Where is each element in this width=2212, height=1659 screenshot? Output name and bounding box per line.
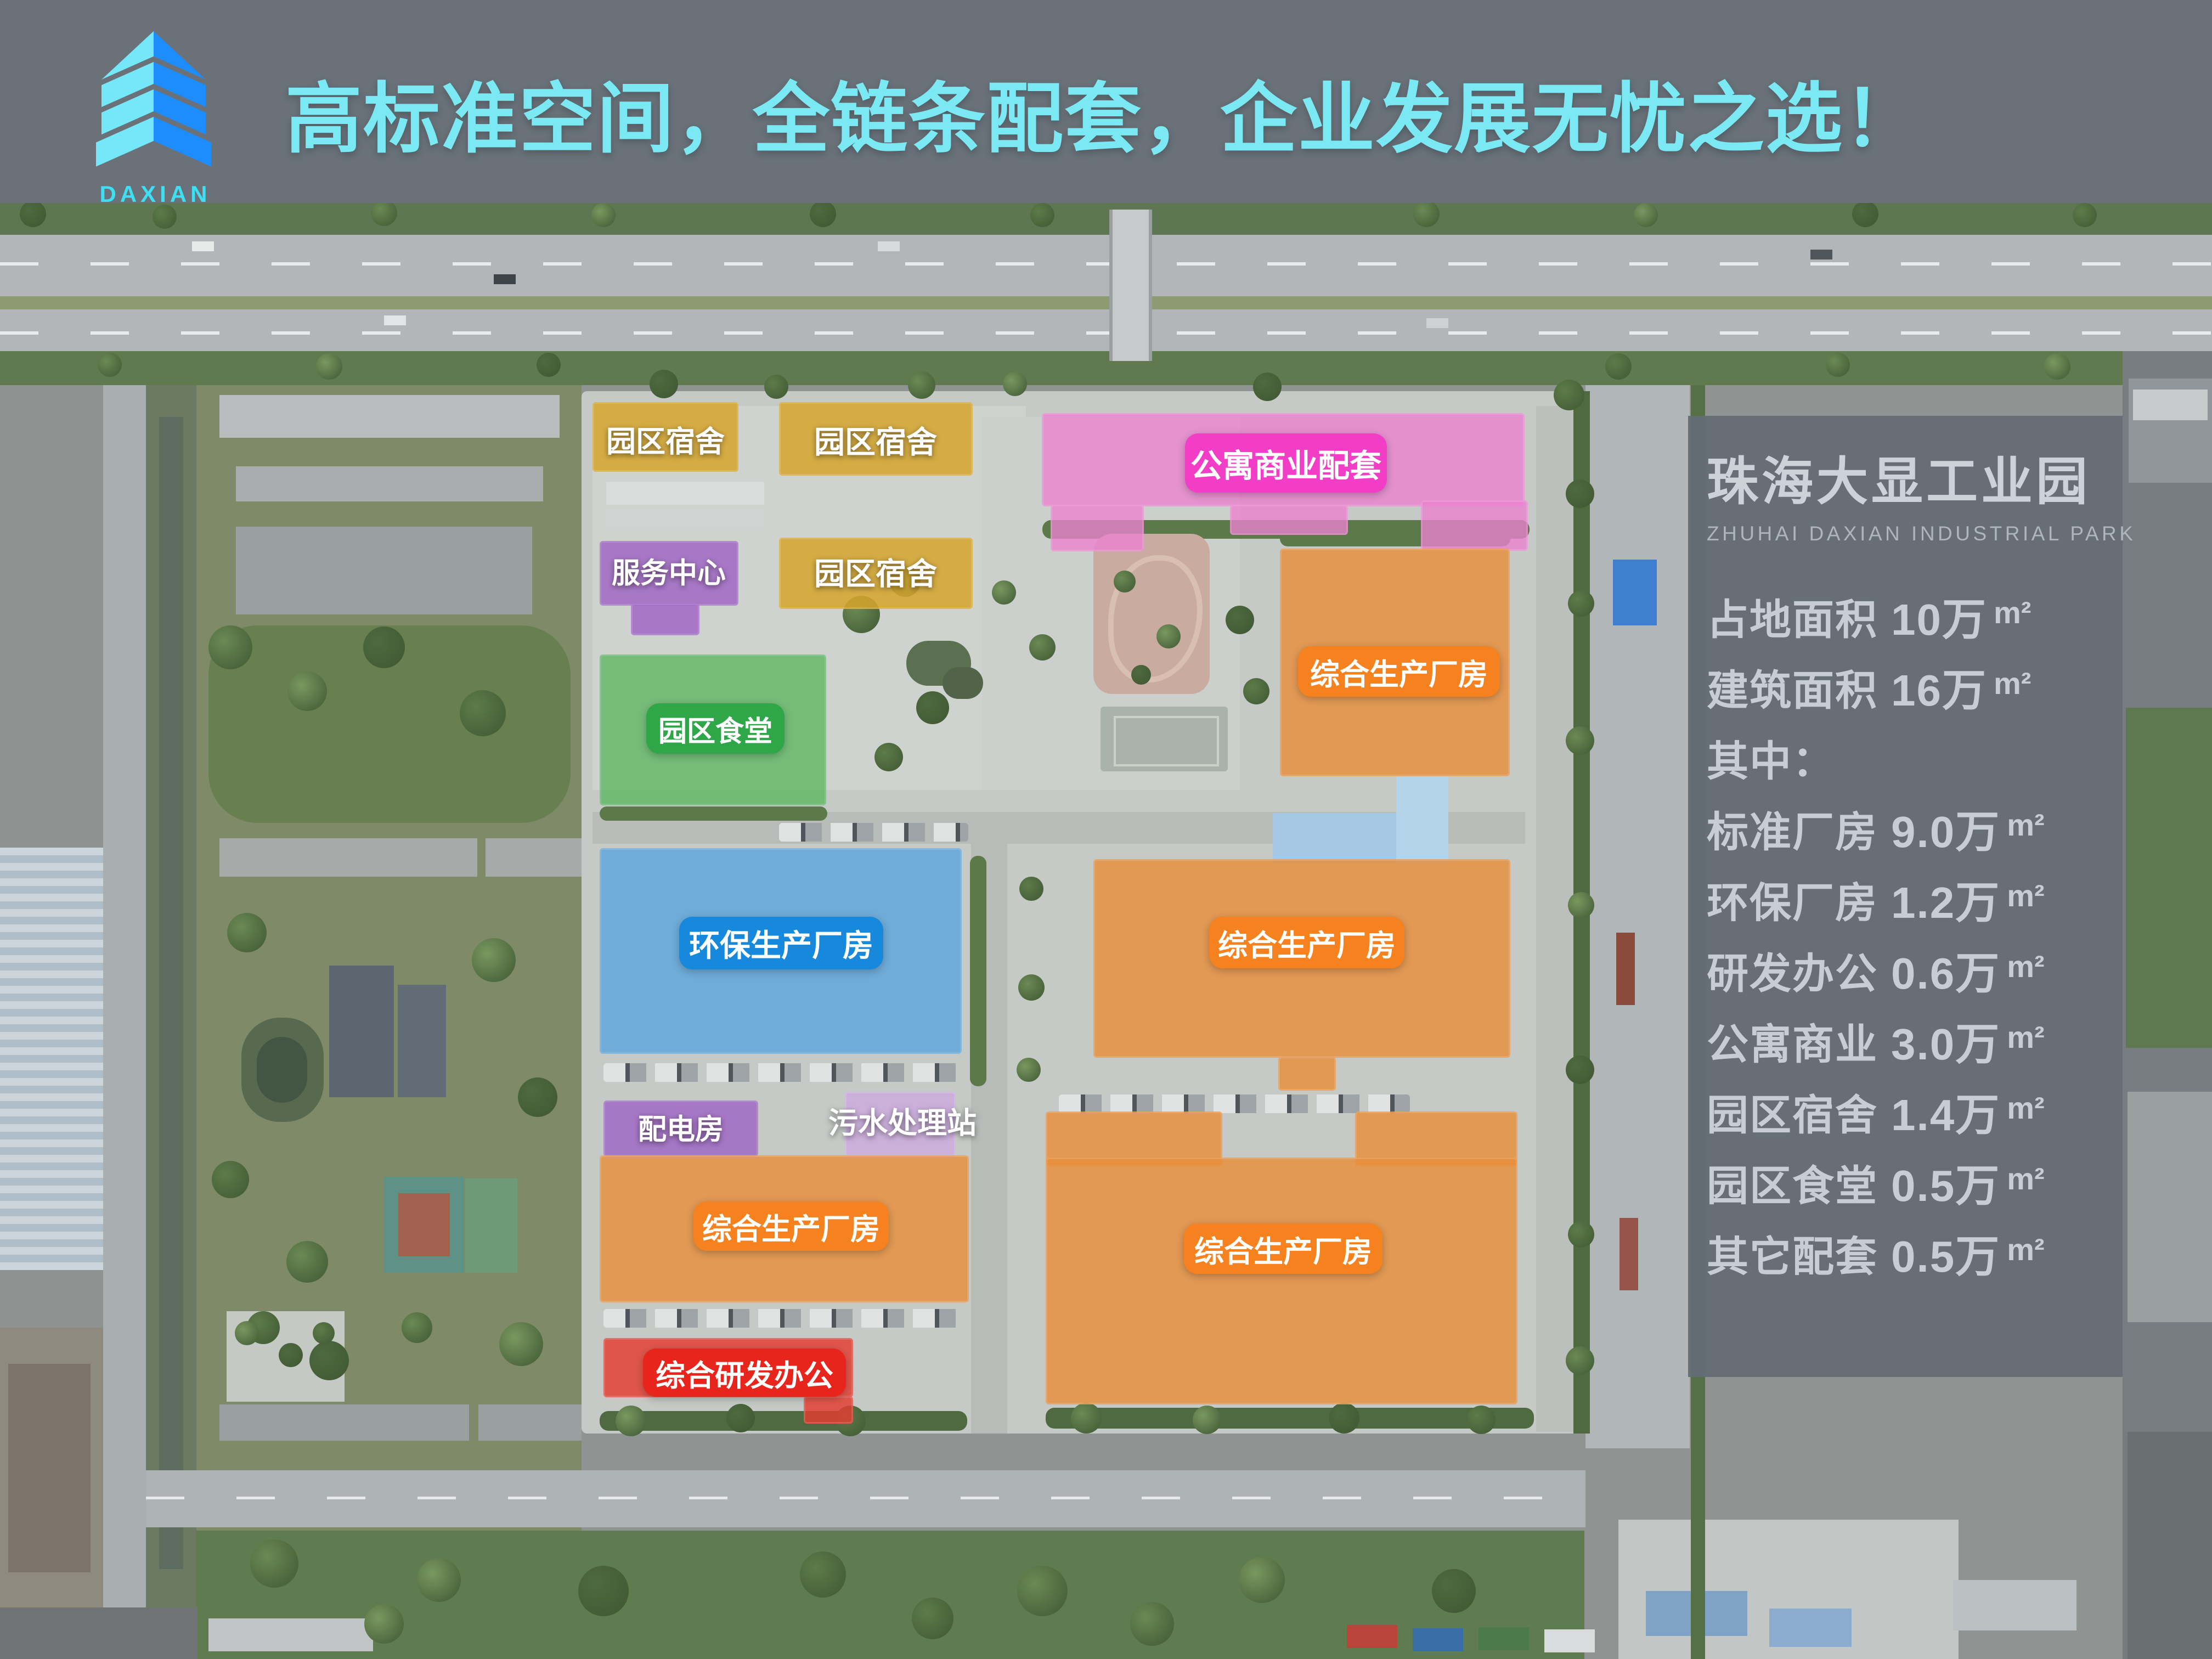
tree <box>286 1241 328 1283</box>
area-stat-row: 其中： <box>1707 722 2123 793</box>
tree <box>1605 353 1632 380</box>
tree <box>1029 634 1056 661</box>
map-decor <box>1046 1408 1534 1429</box>
map-decor <box>0 331 2212 335</box>
map-decor <box>1114 716 1219 766</box>
tree <box>616 1406 646 1436</box>
map-decor <box>494 274 516 284</box>
map-decor <box>103 385 146 1659</box>
tree <box>1243 678 1269 704</box>
map-decor <box>1620 1218 1638 1290</box>
tree <box>1156 624 1181 648</box>
map-decor <box>465 1178 517 1273</box>
stat-unit: m² <box>2007 1161 2044 1197</box>
tree <box>402 1312 432 1343</box>
tree <box>800 1551 846 1598</box>
tree <box>591 203 616 227</box>
stat-unit: m² <box>2007 1090 2044 1126</box>
map-decor <box>398 1193 450 1256</box>
building-label-dorm-nw: 园区宿舍 <box>606 417 725 461</box>
map-decor <box>398 985 446 1097</box>
stat-value: 0.6万 <box>1891 938 2000 1002</box>
stat-label: 占地面积 <box>1707 586 1891 646</box>
area-stat-row: 环保厂房 1.2万 m² <box>1707 864 2123 934</box>
poster: 园区宿舍园区宿舍公寓商业配套服务中心园区宿舍园区食堂综合生产厂房环保生产厂房综合… <box>0 0 2212 1659</box>
building-label-dorm-mid: 园区宿舍 <box>814 550 937 594</box>
stat-value: 1.2万 <box>1891 867 2000 931</box>
stat-unit: m² <box>1994 665 2031 701</box>
stat-value: 3.0万 <box>1891 1009 2000 1073</box>
stat-label: 其它配套 <box>1707 1223 1891 1283</box>
stat-label: 公寓商业 <box>1707 1011 1891 1071</box>
tree <box>1253 373 1282 401</box>
stat-value: 16万 <box>1891 655 1987 719</box>
area-stat-row: 其它配套 0.5万 m² <box>1707 1217 2123 1288</box>
tree <box>992 580 1016 605</box>
tree <box>1019 877 1043 901</box>
page-title: 高标准空间，全链条配套，企业发展无忧之选！ <box>285 57 1921 168</box>
map-decor <box>2128 1432 2212 1659</box>
header-bar: DAXIAN 高标准空间，全链条配套，企业发展无忧之选！ <box>0 0 2212 203</box>
tree <box>364 1604 404 1644</box>
building-badge-rd-office: 综合研发办公 <box>643 1348 846 1397</box>
tree <box>1003 372 1027 396</box>
stat-label: 标准厂房 <box>1707 798 1891 859</box>
stat-unit: m² <box>2007 807 2044 843</box>
tree <box>916 691 949 724</box>
map-decor <box>1544 1629 1595 1652</box>
building-overlay-plant-center <box>1278 1057 1336 1091</box>
map-decor <box>219 838 477 877</box>
map-decor <box>219 1404 469 1441</box>
tree <box>417 1558 461 1602</box>
map-decor <box>1413 1628 1463 1651</box>
stat-unit: m² <box>2007 1019 2044 1055</box>
tree <box>1566 726 1594 755</box>
tree <box>810 201 836 227</box>
tree <box>764 375 788 399</box>
building-overlay-apartment <box>1230 505 1348 535</box>
map-decor <box>1616 933 1635 1005</box>
area-stat-row: 公寓商业 3.0万 m² <box>1707 1005 2123 1076</box>
stat-label: 其中： <box>1707 727 1835 788</box>
building-overlay-service <box>631 603 699 635</box>
tree <box>499 1322 543 1366</box>
tree <box>1018 974 1045 1001</box>
parking-row <box>603 1063 960 1082</box>
tree <box>20 201 46 227</box>
tree <box>1017 1566 1068 1616</box>
tree <box>912 1598 953 1639</box>
area-stats-list: 占地面积 10万 m² 建筑面积 16万 m² 其中： 标准厂房 9.0万 m²… <box>1707 580 2123 1288</box>
tree <box>153 205 177 229</box>
map-decor <box>486 838 582 877</box>
logo-wordmark: DAXIAN <box>98 181 213 207</box>
building-badge-eco-plant: 环保生产厂房 <box>679 917 883 969</box>
building-label-power: 配电房 <box>638 1107 724 1148</box>
daxian-building-logo-icon: DAXIAN <box>93 43 208 180</box>
building-badge-plant-ne: 综合生产厂房 <box>1298 646 1500 697</box>
map-decor <box>1479 1627 1529 1650</box>
map-decor <box>384 315 406 325</box>
tree <box>578 1566 629 1616</box>
area-stat-row: 占地面积 10万 m² <box>1707 580 2123 651</box>
map-decor <box>478 1404 582 1441</box>
tree <box>227 913 267 952</box>
area-stat-row: 建筑面积 16万 m² <box>1707 651 2123 722</box>
map-decor <box>2133 390 2208 420</box>
map-decor <box>159 417 183 1569</box>
building-overlay-apartment <box>1051 505 1144 551</box>
tree <box>908 371 935 399</box>
tree <box>371 200 397 226</box>
tree <box>460 690 506 736</box>
map-decor <box>0 296 2212 309</box>
map-decor <box>236 527 532 614</box>
tree <box>650 370 678 398</box>
tree <box>1554 380 1584 410</box>
map-decor <box>1396 776 1448 864</box>
tree <box>537 353 561 377</box>
stat-value: 0.5万 <box>1891 1150 2000 1214</box>
tree <box>1030 203 1054 227</box>
park-name: 珠海大显工业园 <box>1707 440 2123 515</box>
map-decor <box>236 466 543 501</box>
map-decor <box>606 509 764 529</box>
map-decor <box>8 1364 91 1572</box>
tree <box>1130 1602 1174 1646</box>
building-overlay-plant-se <box>1046 1158 1517 1404</box>
tree <box>472 938 516 982</box>
map-decor <box>1347 1625 1397 1648</box>
building-badge-plant-se: 综合生产厂房 <box>1184 1223 1383 1274</box>
stat-label: 园区宿舍 <box>1707 1081 1891 1142</box>
tree <box>316 353 342 380</box>
building-overlay-apartment <box>1421 500 1528 551</box>
map-decor <box>1613 560 1657 625</box>
building-label-sewage: 污水处理站 <box>828 1099 977 1142</box>
tree <box>1432 1569 1476 1613</box>
tree <box>1413 201 1440 227</box>
map-decor <box>600 806 827 821</box>
tree <box>1566 1056 1594 1084</box>
parking-row <box>1059 1094 1410 1113</box>
tree <box>1566 479 1594 508</box>
tree <box>2073 203 2097 227</box>
tree <box>208 625 252 669</box>
tree <box>1131 665 1151 685</box>
tree <box>1017 1058 1041 1082</box>
stat-unit: m² <box>2007 949 2044 984</box>
tree <box>1239 1557 1285 1603</box>
tree <box>1634 203 1658 227</box>
building-badge-apartment: 公寓商业配套 <box>1185 433 1387 493</box>
tree <box>1568 1221 1594 1248</box>
area-stat-row: 园区宿舍 1.4万 m² <box>1707 1076 2123 1147</box>
parking-row <box>779 823 968 842</box>
building-label-service: 服务中心 <box>612 550 726 591</box>
tree <box>98 353 122 377</box>
map-decor <box>0 203 2212 235</box>
park-name-en: ZHUHAI DAXIAN INDUSTRIAL PARK <box>1707 522 2123 545</box>
map-decor <box>0 848 103 1270</box>
tree <box>1193 1406 1221 1434</box>
map-decor <box>219 395 560 438</box>
stat-label: 环保厂房 <box>1707 869 1891 929</box>
map-decor <box>2128 1092 2212 1322</box>
stat-value: 1.4万 <box>1891 1080 2000 1143</box>
building-badge-canteen: 园区食堂 <box>646 703 785 754</box>
tree <box>1852 201 1878 227</box>
stat-label: 园区食堂 <box>1707 1152 1891 1212</box>
tree <box>518 1077 557 1117</box>
area-stat-row: 研发办公 0.6万 m² <box>1707 934 2123 1005</box>
tree <box>313 1322 335 1344</box>
stat-label: 建筑面积 <box>1707 657 1891 717</box>
tree <box>874 743 903 771</box>
map-decor <box>0 262 2212 266</box>
tree <box>1329 1403 1359 1434</box>
map-decor <box>600 1411 967 1431</box>
map-decor <box>878 241 900 251</box>
map-decor <box>1426 318 1448 328</box>
stat-value: 10万 <box>1891 584 1987 648</box>
tree <box>279 1343 303 1367</box>
tree <box>1071 1403 1102 1434</box>
map-decor <box>1769 1609 1852 1647</box>
stat-value: 9.0万 <box>1891 797 2000 860</box>
tree <box>1826 353 1850 377</box>
map-decor <box>1536 406 1575 1432</box>
map-decor <box>0 1607 198 1659</box>
stat-unit: m² <box>1994 595 2031 630</box>
building-badge-plant-sw: 综合生产厂房 <box>693 1201 889 1251</box>
tree <box>1568 590 1594 617</box>
tree <box>1114 571 1136 592</box>
info-panel: 珠海大显工业园 ZHUHAI DAXIAN INDUSTRIAL PARK 占地… <box>1688 416 2123 1377</box>
tree <box>309 1341 349 1380</box>
map-decor <box>192 241 214 251</box>
map-decor <box>606 482 764 505</box>
area-stat-row: 园区食堂 0.5万 m² <box>1707 1147 2123 1217</box>
tree <box>250 1539 298 1588</box>
area-stat-row: 标准厂房 9.0万 m² <box>1707 793 2123 864</box>
map-decor <box>1810 250 1832 259</box>
map-decor <box>2126 708 2212 1048</box>
tree <box>1568 892 1594 918</box>
tree <box>1467 1406 1496 1434</box>
tree <box>1226 606 1254 634</box>
tree <box>363 627 405 668</box>
map-decor <box>208 1618 373 1651</box>
building-overlay-rd-office <box>804 1396 853 1424</box>
map-decor <box>943 667 983 699</box>
stat-value: 0.5万 <box>1891 1221 2000 1285</box>
tree <box>212 1161 249 1198</box>
stat-unit: m² <box>2007 878 2044 913</box>
stat-unit: m² <box>2007 1232 2044 1267</box>
building-label-dorm-n: 园区宿舍 <box>814 418 937 462</box>
map-decor <box>257 1037 307 1103</box>
map-decor <box>970 856 986 1086</box>
tree <box>235 1321 259 1345</box>
map-decor <box>1953 1580 2076 1630</box>
tree <box>726 1404 755 1432</box>
map-decor <box>329 966 394 1097</box>
map-decor <box>1109 210 1152 361</box>
tree <box>2044 353 2070 380</box>
parking-row <box>603 1309 963 1328</box>
stat-label: 研发办公 <box>1707 940 1891 1000</box>
building-badge-plant-center: 综合生产厂房 <box>1209 917 1404 968</box>
tree <box>1566 1346 1594 1375</box>
tree <box>287 672 327 711</box>
